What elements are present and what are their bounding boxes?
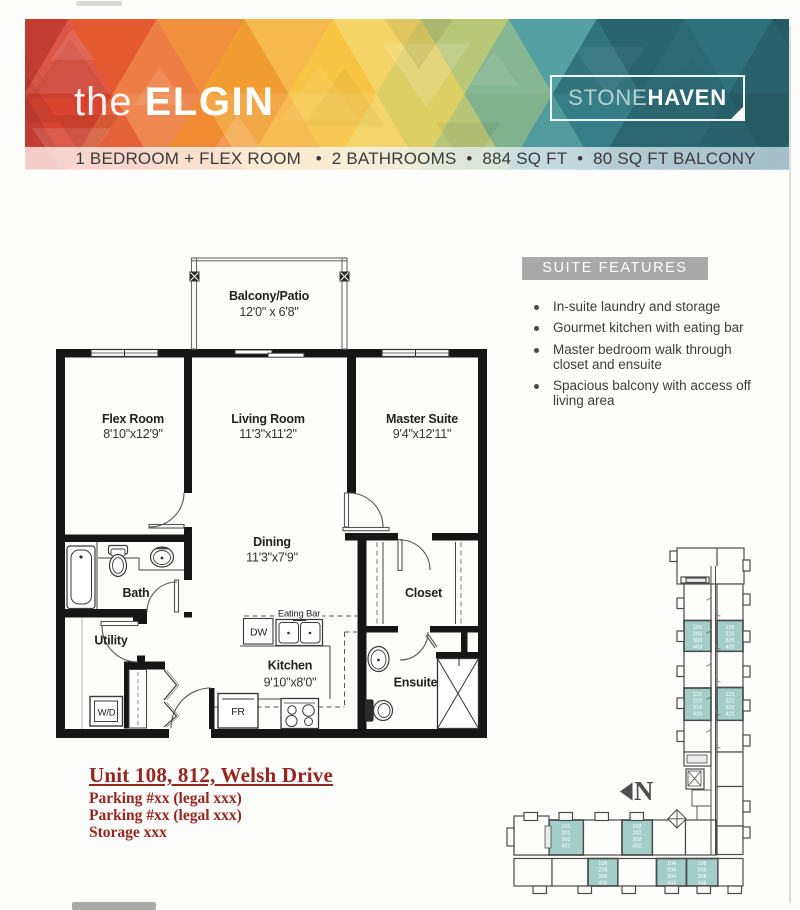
svg-text:421: 421 xyxy=(725,712,734,718)
svg-text:9'10"x8'0": 9'10"x8'0" xyxy=(264,676,317,690)
svg-text:308: 308 xyxy=(697,874,706,880)
svg-text:108: 108 xyxy=(697,861,706,867)
svg-text:12'0" x 6'8": 12'0" x 6'8" xyxy=(239,305,298,319)
svg-text:321: 321 xyxy=(725,705,734,711)
svg-text:11'3"x7'9": 11'3"x7'9" xyxy=(246,551,298,565)
svg-text:302: 302 xyxy=(632,837,641,843)
svg-text:221: 221 xyxy=(725,699,734,705)
svg-text:Dining: Dining xyxy=(253,535,291,549)
svg-text:301: 301 xyxy=(561,837,570,843)
svg-text:404: 404 xyxy=(667,881,676,887)
svg-text:403: 403 xyxy=(693,645,702,651)
svg-text:Balcony/Patio: Balcony/Patio xyxy=(229,289,310,303)
svg-text:Living Room: Living Room xyxy=(231,412,305,426)
svg-text:201: 201 xyxy=(561,831,570,837)
svg-text:101: 101 xyxy=(561,824,570,830)
svg-text:402: 402 xyxy=(632,844,641,850)
svg-text:FR: FR xyxy=(231,706,245,718)
svg-text:Master Suite: Master Suite xyxy=(386,412,458,426)
svg-text:DW: DW xyxy=(250,627,267,639)
svg-text:401: 401 xyxy=(561,844,570,850)
svg-text:106: 106 xyxy=(598,861,607,867)
svg-text:104: 104 xyxy=(667,861,676,867)
svg-text:N: N xyxy=(634,776,654,806)
svg-text:W/D: W/D xyxy=(98,708,116,719)
svg-text:11'3"x11'2": 11'3"x11'2" xyxy=(239,427,297,441)
svg-text:103: 103 xyxy=(693,625,702,631)
svg-text:225: 225 xyxy=(725,632,734,638)
svg-text:Utility: Utility xyxy=(94,634,128,648)
svg-text:121: 121 xyxy=(725,692,734,698)
svg-text:204: 204 xyxy=(667,868,676,874)
svg-text:304: 304 xyxy=(667,874,676,880)
svg-text:Eating Bar: Eating Bar xyxy=(278,609,320,620)
svg-text:325: 325 xyxy=(725,638,734,644)
svg-text:119: 119 xyxy=(693,692,702,698)
svg-text:202: 202 xyxy=(632,831,641,837)
svg-text:219: 219 xyxy=(693,699,702,705)
svg-text:Kitchen: Kitchen xyxy=(268,659,312,673)
svg-text:206: 206 xyxy=(598,868,607,874)
svg-text:125: 125 xyxy=(725,625,734,631)
svg-text:8'10"x12'9": 8'10"x12'9" xyxy=(103,427,162,441)
svg-text:203: 203 xyxy=(693,632,702,638)
svg-text:Closet: Closet xyxy=(405,586,443,600)
svg-text:208: 208 xyxy=(697,868,706,874)
svg-text:408: 408 xyxy=(697,881,706,887)
svg-text:102: 102 xyxy=(632,824,641,830)
svg-text:425: 425 xyxy=(725,645,734,651)
svg-text:Flex Room: Flex Room xyxy=(102,412,164,426)
svg-text:319: 319 xyxy=(693,705,702,711)
svg-text:Bath: Bath xyxy=(123,586,150,600)
svg-text:306: 306 xyxy=(598,874,607,880)
svg-text:303: 303 xyxy=(693,638,702,644)
svg-text:Ensuite: Ensuite xyxy=(394,676,438,690)
svg-text:419: 419 xyxy=(693,712,702,718)
svg-text:406: 406 xyxy=(598,881,607,887)
svg-text:9'4"x12'11": 9'4"x12'11" xyxy=(393,427,451,441)
